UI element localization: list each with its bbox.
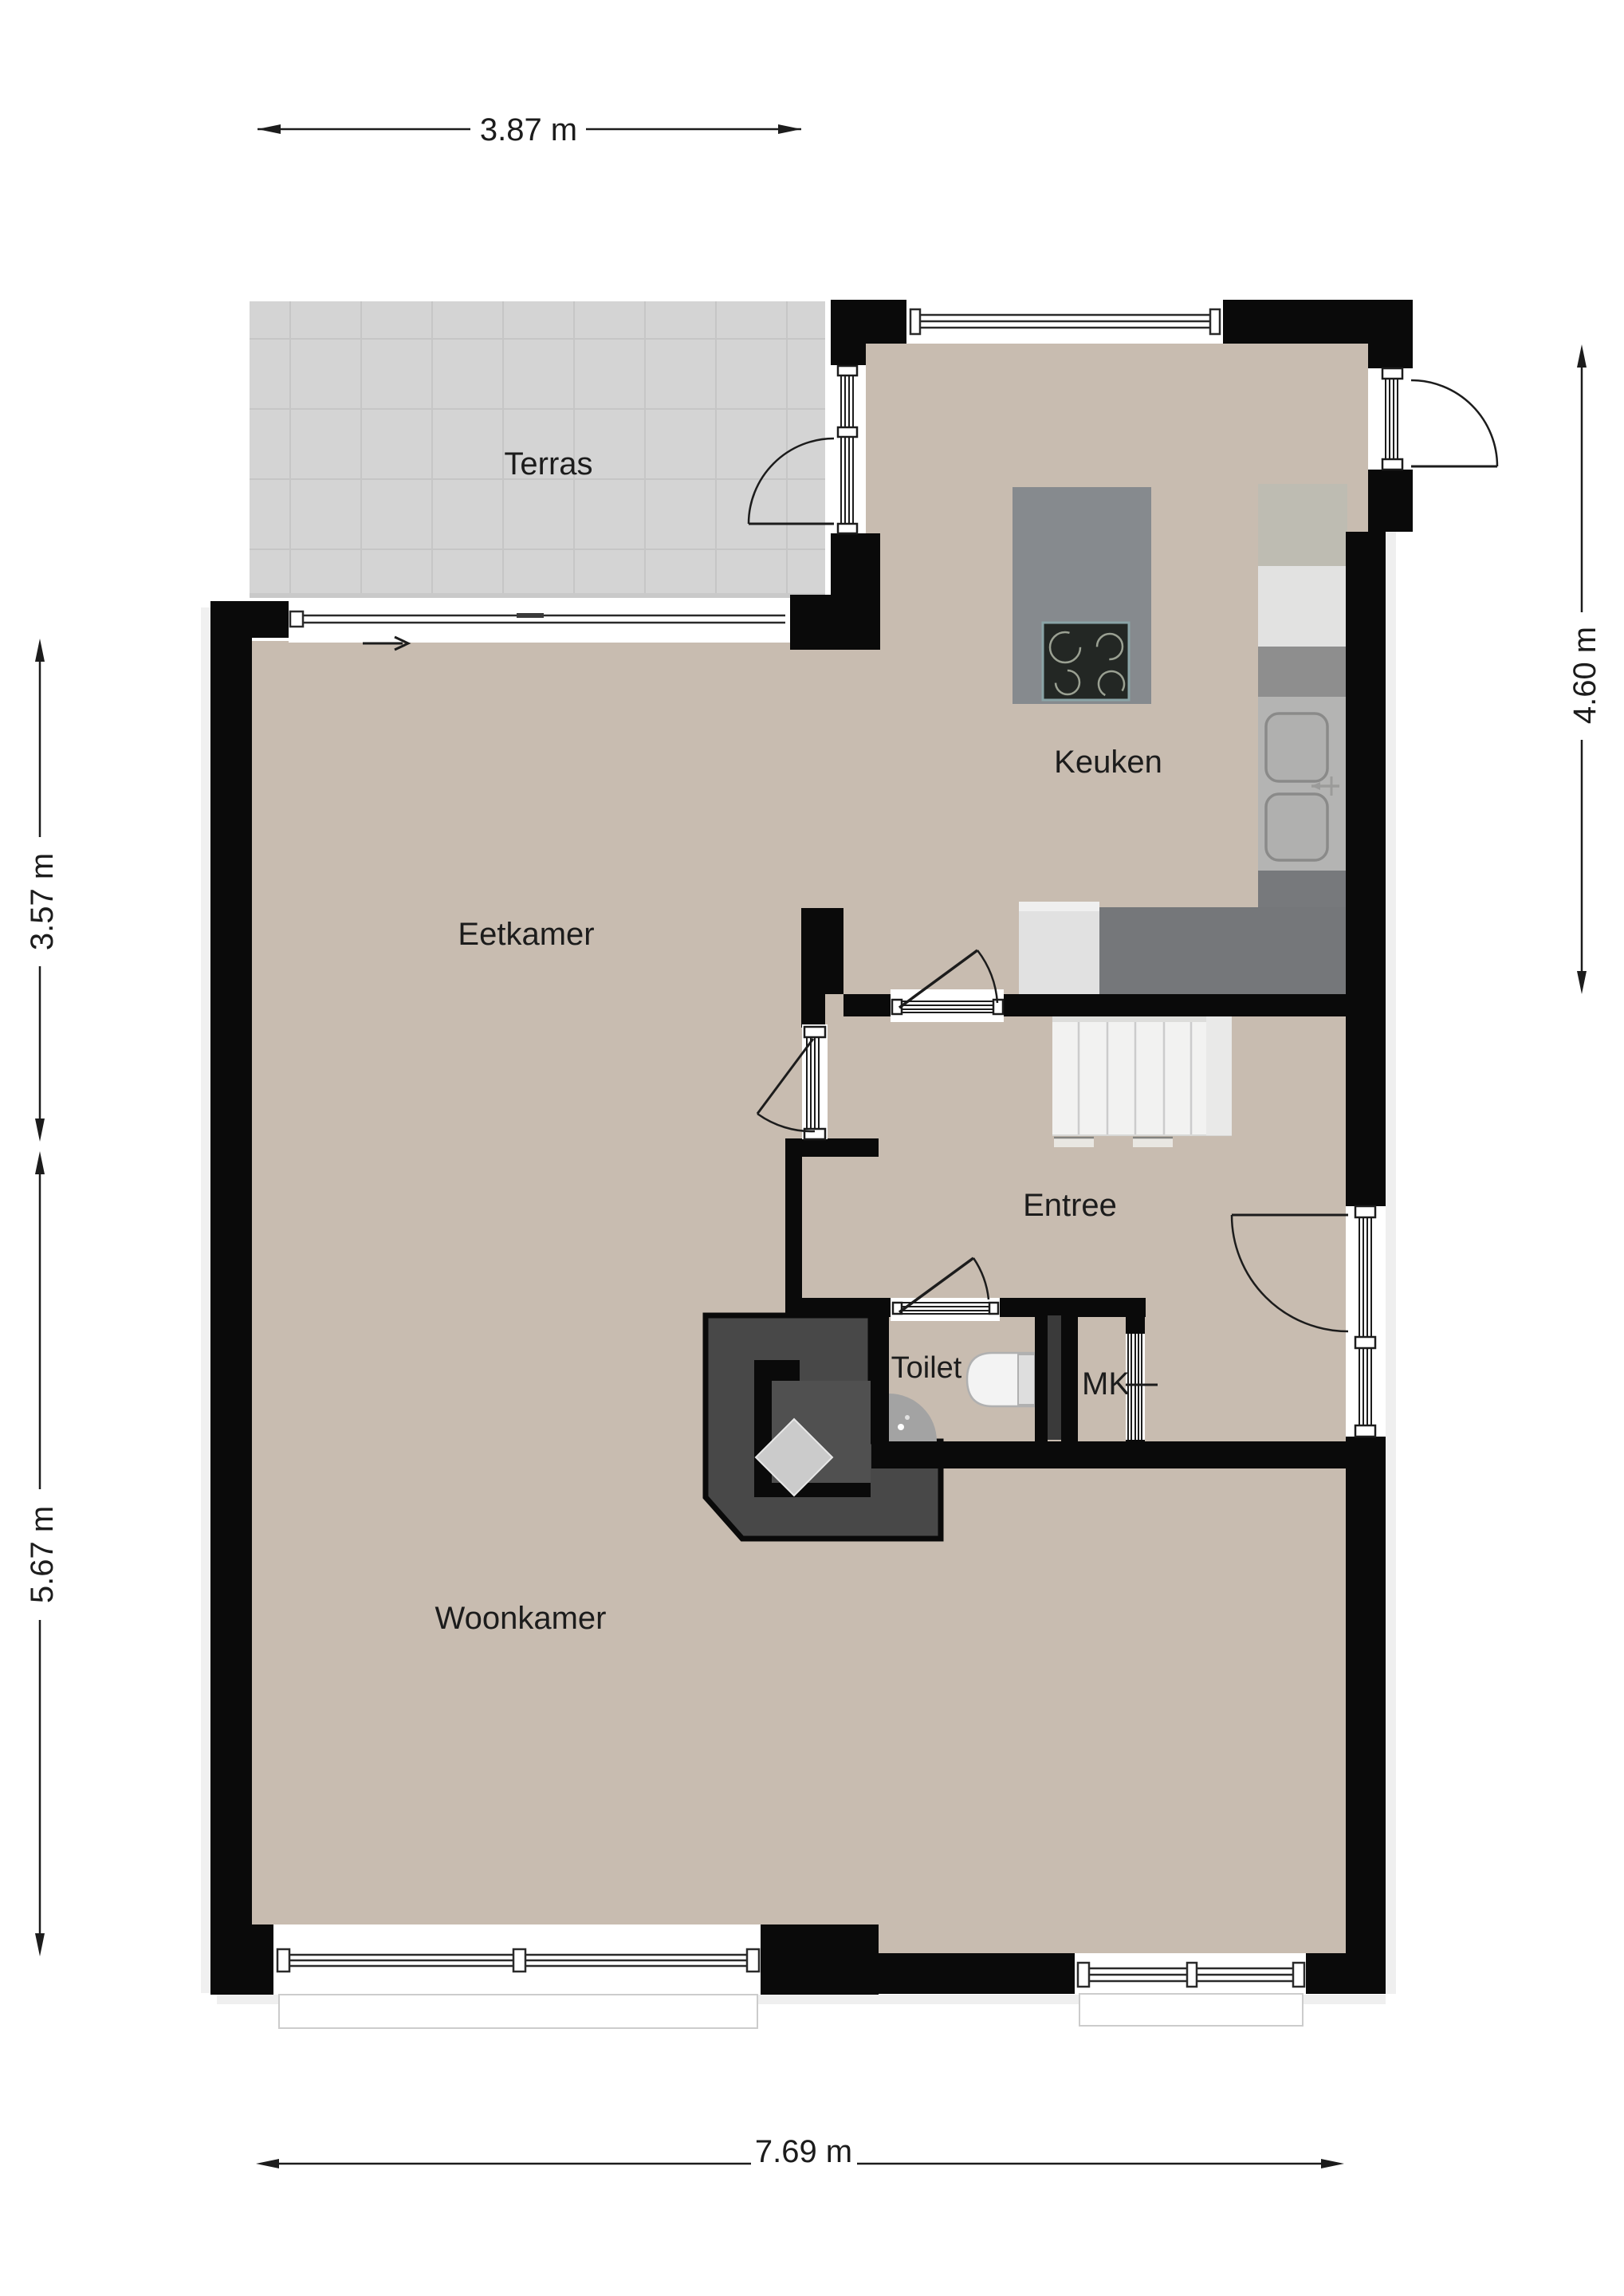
svg-text:Keuken: Keuken xyxy=(1054,745,1162,780)
svg-text:3.57 m: 3.57 m xyxy=(25,853,60,950)
svg-text:7.69 m: 7.69 m xyxy=(755,2134,852,2169)
svg-text:Woonkamer: Woonkamer xyxy=(435,1601,607,1636)
svg-text:5.67 m: 5.67 m xyxy=(25,1506,60,1603)
svg-text:Entree: Entree xyxy=(1023,1188,1117,1223)
svg-text:3.87 m: 3.87 m xyxy=(480,112,577,147)
svg-text:MK: MK xyxy=(1082,1366,1130,1402)
svg-text:4.60 m: 4.60 m xyxy=(1567,627,1602,724)
svg-text:Eetkamer: Eetkamer xyxy=(458,917,594,952)
svg-text:Terras: Terras xyxy=(504,446,592,482)
svg-text:Toilet: Toilet xyxy=(891,1351,962,1385)
